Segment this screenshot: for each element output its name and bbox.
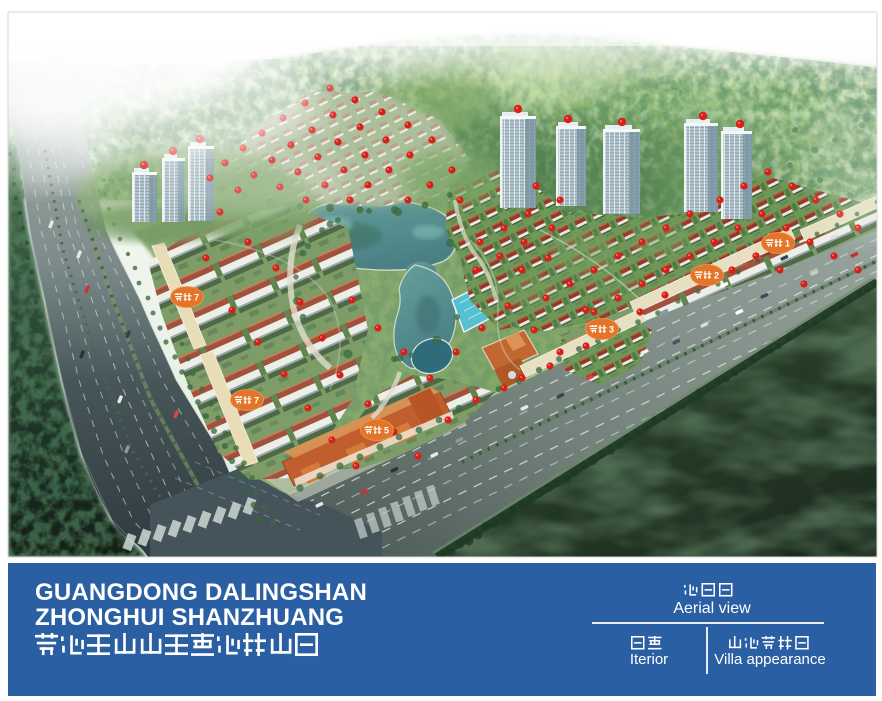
svg-text:1: 1 bbox=[785, 238, 790, 248]
svg-text:7: 7 bbox=[194, 292, 199, 302]
svg-text:2: 2 bbox=[714, 270, 719, 280]
svg-text:7: 7 bbox=[254, 395, 259, 405]
svg-text:5: 5 bbox=[384, 425, 389, 435]
svg-text:3: 3 bbox=[609, 324, 614, 334]
